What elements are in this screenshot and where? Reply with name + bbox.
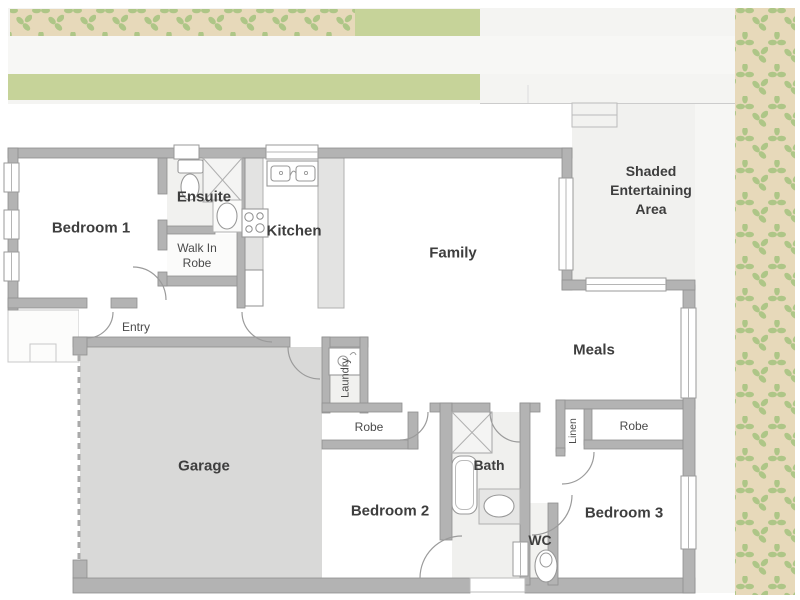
room-label-ensuite: Ensuite xyxy=(177,190,231,205)
kitchen-island xyxy=(318,158,344,308)
room-label-shaded-line1: Shaded xyxy=(626,164,677,178)
room-label-robe-bed2: Robe xyxy=(355,421,384,433)
room-label-shaded-line2: Entertaining xyxy=(610,183,692,197)
wc-toilet-icon xyxy=(535,550,557,582)
room-label-bath: Bath xyxy=(473,458,504,472)
cooktop-icon xyxy=(242,209,268,237)
room-label-garage: Garage xyxy=(178,459,230,474)
room-label-walk-in-robe-line2: Robe xyxy=(183,257,212,269)
room-label-bedroom2: Bedroom 2 xyxy=(351,504,429,519)
room-label-walk-in-robe-line1: Walk In xyxy=(177,242,217,254)
garden-bed-top xyxy=(10,9,355,36)
room-label-wc: WC xyxy=(528,533,551,547)
bath-shower-icon xyxy=(452,412,492,453)
room-label-entry: Entry xyxy=(122,321,150,333)
room-label-laundry: Laundry xyxy=(341,358,352,398)
kitchen-sink-icon xyxy=(267,161,318,186)
floor-plan: Bedroom 1 Ensuite Walk In Robe Kitchen F… xyxy=(0,0,800,600)
room-label-robe-bed3: Robe xyxy=(620,420,649,432)
lawn-strip-2 xyxy=(8,74,480,100)
room-label-kitchen: Kitchen xyxy=(266,224,321,239)
lawn-strip-1 xyxy=(355,9,480,36)
room-label-linen: Linen xyxy=(568,418,579,444)
room-label-bedroom3: Bedroom 3 xyxy=(585,506,663,521)
room-label-shaded-line3: Area xyxy=(635,202,666,216)
room-label-bedroom1: Bedroom 1 xyxy=(52,221,130,236)
steps xyxy=(572,103,617,127)
room-label-family: Family xyxy=(429,246,477,261)
vanity-basin-icon xyxy=(479,489,520,524)
room-label-meals: Meals xyxy=(573,343,615,358)
garden-bed-right xyxy=(735,8,795,595)
porch xyxy=(8,310,79,362)
